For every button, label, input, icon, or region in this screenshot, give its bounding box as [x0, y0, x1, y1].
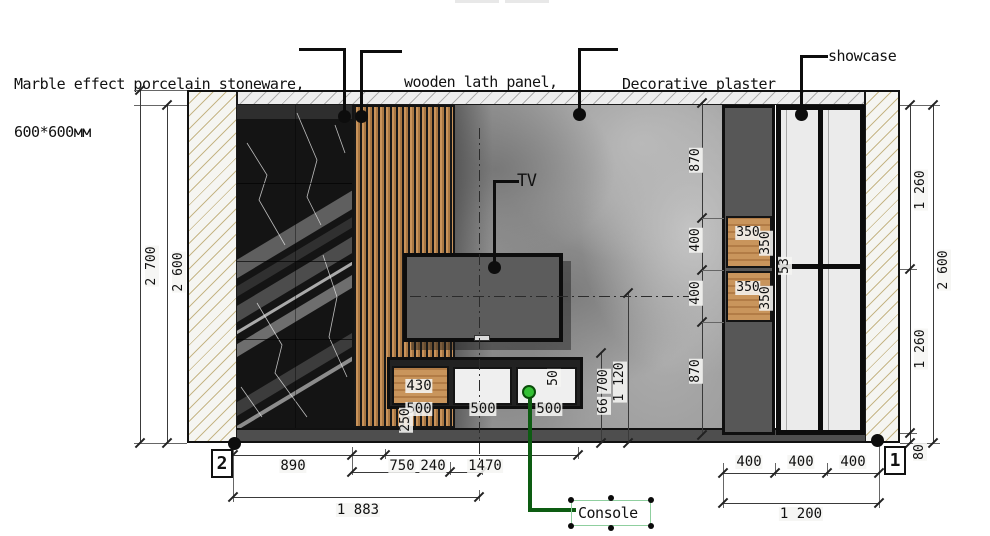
showcase-leader	[800, 55, 803, 110]
tv-leader	[493, 180, 496, 268]
dim-750: 750	[388, 459, 415, 473]
tv-horizontal-centerline	[410, 296, 702, 297]
tv-label: TV	[517, 173, 536, 189]
dim-console-50: 50	[547, 369, 561, 387]
console-cable-line-vertical	[528, 392, 532, 512]
plaster-leader	[578, 48, 618, 51]
detail-marker-2-number: 2	[217, 453, 228, 474]
tall-cabinet	[722, 105, 775, 435]
right-wall-section	[865, 90, 900, 443]
grip-handle[interactable]	[568, 497, 574, 503]
grip-handle[interactable]	[568, 523, 574, 529]
console-cable-line-horizontal	[528, 508, 576, 512]
tv	[403, 253, 563, 342]
dim-console-250: 250	[399, 407, 413, 432]
plaster-leader-dot	[573, 108, 586, 121]
marble-leader	[343, 48, 346, 116]
dim-niche-bottom-height: 350	[759, 285, 773, 310]
dim-890: 890	[279, 459, 306, 473]
dim-left-interior: 2 600	[172, 251, 186, 292]
dim-left-overall: 2 700	[145, 245, 159, 286]
marble-leader-dot	[338, 110, 351, 123]
dim-chain-870-top: 870	[689, 147, 703, 172]
dim-right-plinth: 80	[913, 443, 927, 461]
showcase-leader	[800, 55, 828, 58]
dim-1470: 1470	[467, 459, 503, 473]
dim-400-a: 400	[735, 455, 762, 469]
dim-console-height-700: 700	[597, 368, 611, 393]
detail-marker-2: 2	[211, 449, 233, 478]
console-connection-point[interactable]	[522, 385, 536, 399]
dim-right-upper: 1 260	[914, 169, 928, 210]
top-crop-artifact	[455, 0, 499, 3]
grip-handle[interactable]	[648, 523, 654, 529]
marble-panel	[237, 105, 352, 428]
showcase-annotation: showcase	[828, 48, 896, 64]
dim-console-drawer-500-c: 500	[535, 402, 562, 416]
dim-niche-top-width: 350	[735, 226, 760, 240]
dim-400-b: 400	[787, 455, 814, 469]
tv-notch	[474, 335, 490, 341]
grip-handle[interactable]	[608, 525, 614, 531]
wood-leader-dot	[355, 110, 368, 123]
plaster-leader	[578, 48, 581, 110]
dim-niche-top-height: 350	[759, 230, 773, 255]
dim-tv-axis-1120: 1 120	[613, 361, 627, 402]
dim-chain-870-bottom: 870	[689, 358, 703, 383]
dim-240: 240	[419, 459, 446, 473]
top-crop-artifact	[505, 0, 549, 3]
dim-chain-400-a: 400	[689, 227, 703, 252]
dim-1883: 1 883	[336, 503, 380, 517]
dim-console-cabinet-430: 430	[405, 379, 432, 393]
dim-1200: 1 200	[779, 507, 823, 521]
tv-leader-dot	[488, 261, 501, 274]
dim-showcase-frame: 53	[778, 257, 792, 275]
wood-annotation-line1: wooden lath panel,	[404, 74, 558, 90]
detail-marker-1: 1	[884, 446, 906, 475]
console-drawer-1	[453, 367, 512, 405]
wood-leader	[360, 50, 402, 53]
grip-handle[interactable]	[608, 495, 614, 501]
detail-marker-1-dot	[871, 434, 884, 447]
dim-right-interior: 2 600	[937, 249, 951, 290]
dim-right-lower: 1 260	[914, 328, 928, 369]
console-label[interactable]: Console	[578, 505, 638, 521]
wood-leader	[360, 50, 363, 116]
showcase-panel-right	[823, 110, 860, 430]
elevation-drawing-canvas: Marble effect porcelain stoneware, 600*6…	[0, 0, 990, 536]
dim-niche-bottom-width: 350	[735, 281, 760, 295]
showcase-leader-dot	[795, 108, 808, 121]
dim-console-drawer-500-b: 500	[469, 402, 496, 416]
marble-leader	[299, 48, 345, 51]
grip-handle[interactable]	[648, 497, 654, 503]
tv-leader	[495, 180, 519, 183]
dim-400-c: 400	[839, 455, 866, 469]
dim-chain-400-b: 400	[689, 280, 703, 305]
detail-marker-1-number: 1	[890, 450, 901, 471]
dim-console-gap-66: 66	[597, 397, 611, 415]
plaster-annotation-line1: Decorative plaster	[622, 76, 776, 92]
